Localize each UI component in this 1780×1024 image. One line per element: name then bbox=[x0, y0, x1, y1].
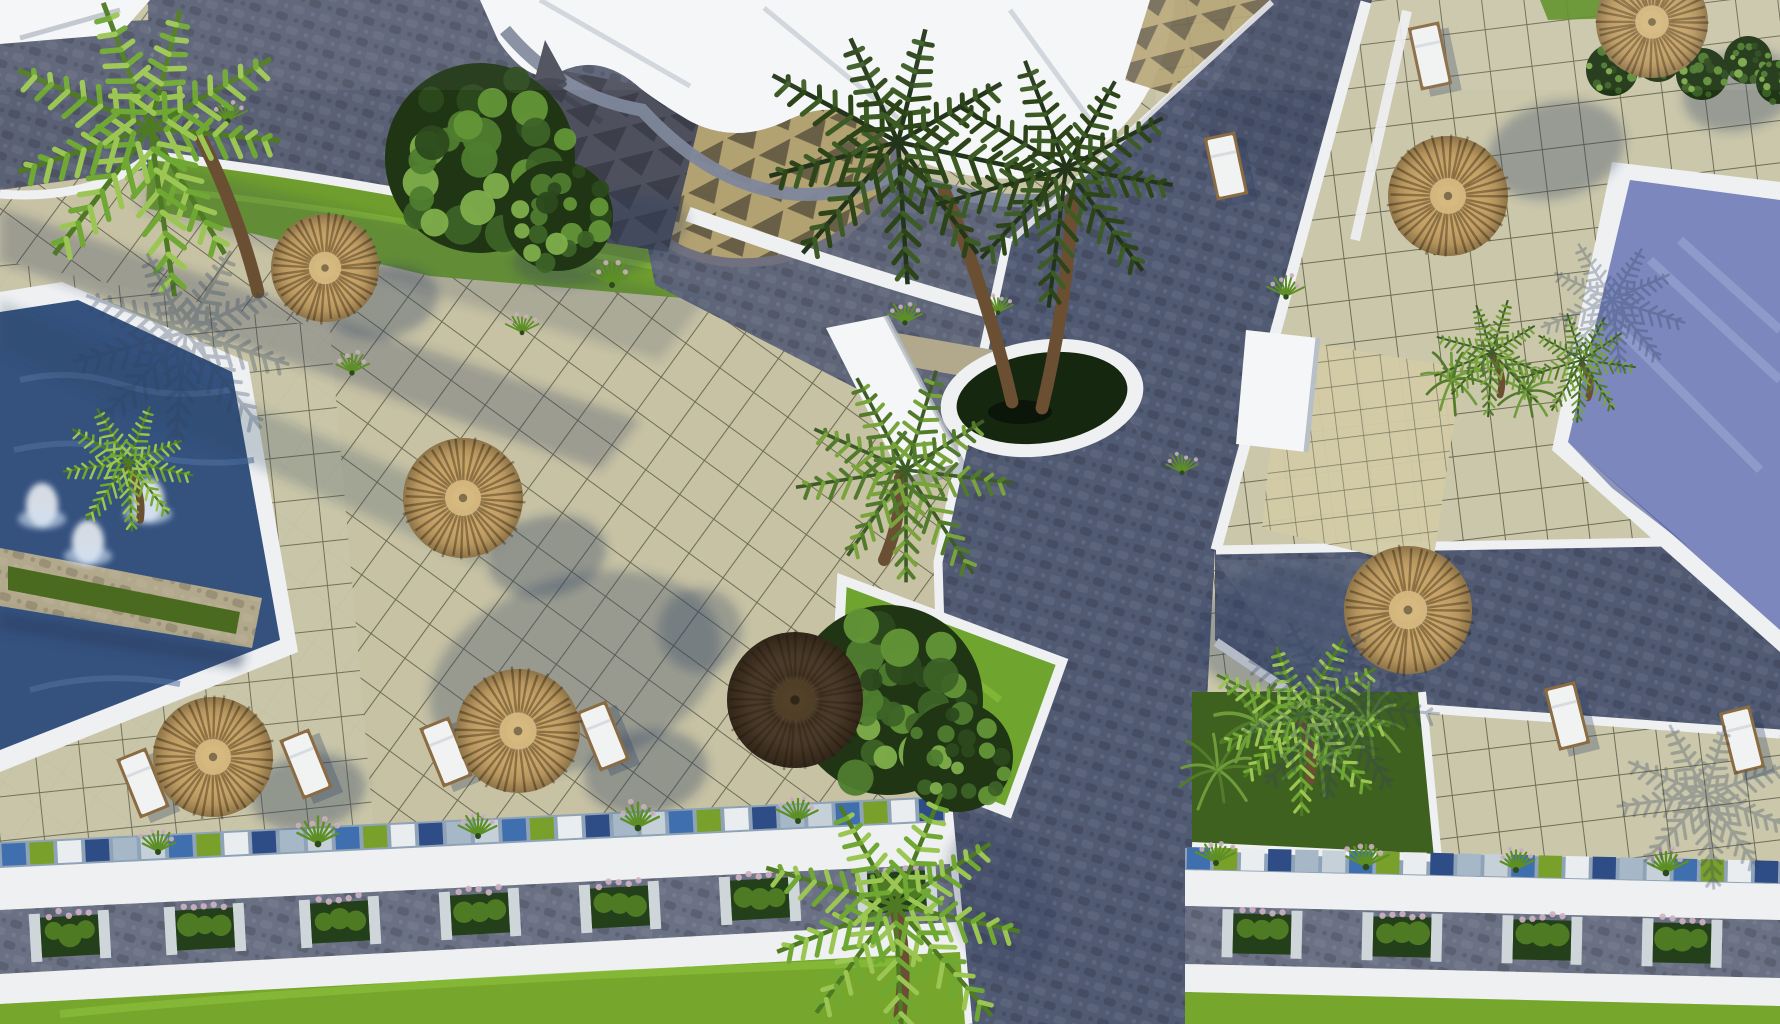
mosaic-tile bbox=[196, 833, 221, 856]
mosaic-tile bbox=[252, 831, 277, 854]
mosaic-tile bbox=[113, 837, 138, 860]
mosaic-tile bbox=[1755, 860, 1779, 883]
mosaic-tile bbox=[530, 817, 555, 840]
mosaic-tile bbox=[668, 810, 693, 833]
mosaic-tile bbox=[1295, 850, 1319, 873]
sunlight-haze bbox=[0, 0, 1780, 90]
mosaic-tile bbox=[1268, 849, 1292, 872]
mosaic-tile bbox=[29, 841, 54, 864]
mosaic-tile bbox=[85, 839, 110, 862]
mosaic-tile bbox=[335, 827, 360, 850]
mosaic-tile bbox=[279, 829, 304, 852]
mosaic-tile bbox=[1565, 856, 1589, 879]
mosaic-tile bbox=[1403, 852, 1427, 875]
mosaic-tile bbox=[724, 808, 749, 831]
planter-box bbox=[1361, 910, 1442, 962]
mosaic-tile bbox=[1322, 850, 1346, 873]
resort-aerial-render bbox=[0, 0, 1780, 1024]
mosaic-tile bbox=[224, 832, 249, 855]
scene-canvas bbox=[0, 0, 1780, 1024]
mosaic-tile bbox=[863, 801, 888, 824]
mosaic-tile bbox=[391, 824, 416, 847]
mosaic-tile bbox=[57, 840, 82, 863]
mosaic-tile bbox=[891, 799, 916, 822]
mosaic-tile bbox=[557, 816, 582, 839]
bush bbox=[903, 702, 1013, 812]
mosaic-tile bbox=[1430, 853, 1454, 876]
mosaic-tile bbox=[1, 843, 26, 866]
mosaic-tile bbox=[1728, 860, 1752, 883]
mosaic-tile bbox=[696, 809, 721, 832]
cast-shadow bbox=[658, 588, 742, 672]
mosaic-tile bbox=[752, 806, 777, 829]
mosaic-tile bbox=[1592, 857, 1616, 880]
mosaic-tile bbox=[502, 818, 527, 841]
mosaic-tile bbox=[585, 814, 610, 837]
mosaic-tile bbox=[1619, 857, 1643, 880]
mosaic-tile bbox=[1538, 855, 1562, 878]
mosaic-tile bbox=[1457, 853, 1481, 876]
mosaic-tile bbox=[418, 822, 443, 845]
mosaic-tile bbox=[1241, 848, 1265, 871]
mosaic-tile bbox=[363, 825, 388, 848]
